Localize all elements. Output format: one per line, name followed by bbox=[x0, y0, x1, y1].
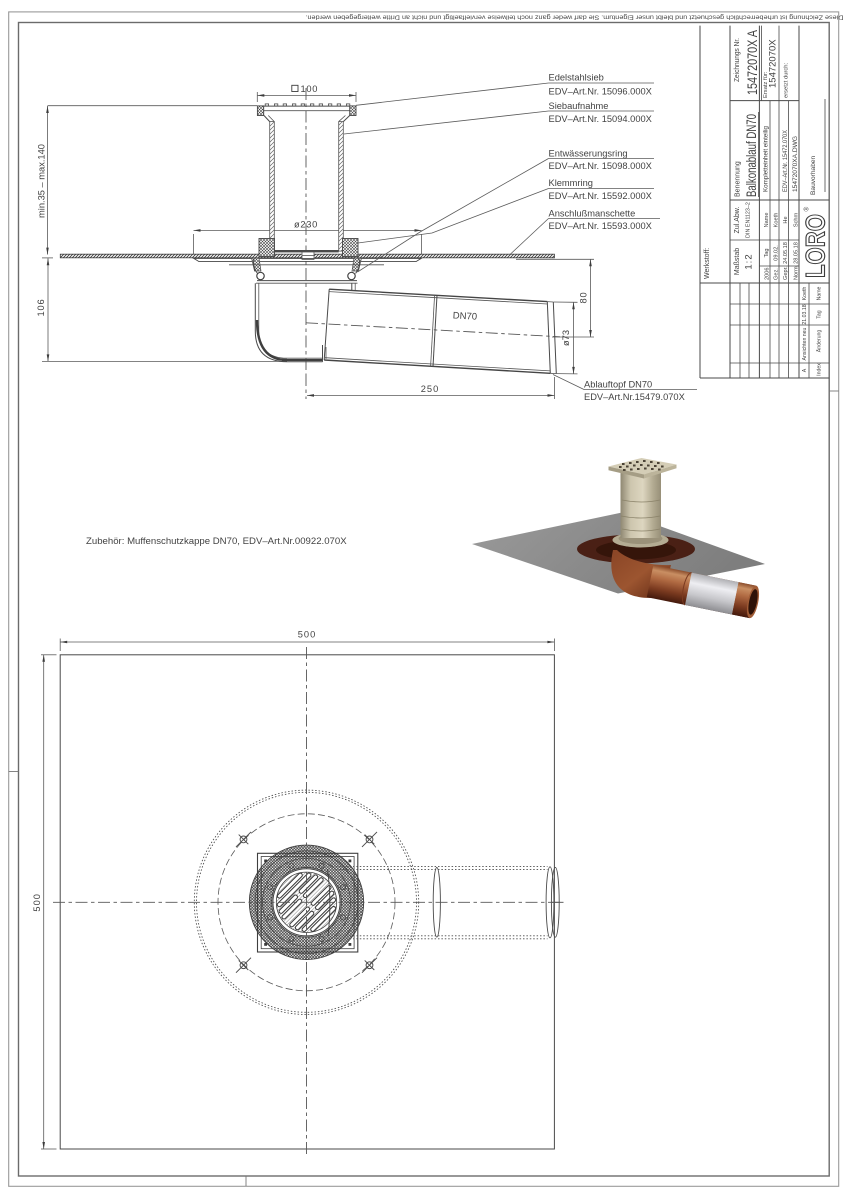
svg-text:Koeth: Koeth bbox=[774, 213, 780, 228]
svg-text:Ablauftopf DN70: Ablauftopf DN70 bbox=[584, 379, 652, 389]
svg-text:Tag: Tag bbox=[764, 248, 770, 257]
svg-text:15472070XA.DWG: 15472070XA.DWG bbox=[792, 136, 799, 192]
svg-text:500: 500 bbox=[298, 630, 317, 640]
svg-text:EDV–Art.Nr. 15472.070X: EDV–Art.Nr. 15472.070X bbox=[782, 129, 789, 192]
svg-text:100: 100 bbox=[301, 84, 319, 94]
svg-text:Bauvorhaben: Bauvorhaben bbox=[810, 155, 817, 195]
svg-text:DN70: DN70 bbox=[452, 310, 477, 322]
svg-text:Siebaufnahme: Siebaufnahme bbox=[549, 101, 609, 111]
svg-text:EDV–Art.Nr. 15096.000X: EDV–Art.Nr. 15096.000X bbox=[549, 86, 652, 96]
svg-text:®: ® bbox=[803, 207, 811, 212]
svg-text:Balkonablauf DN70: Balkonablauf DN70 bbox=[744, 114, 759, 197]
svg-text:ersetzt durch:: ersetzt durch: bbox=[784, 62, 790, 98]
svg-text:Ansichten neu: Ansichten neu bbox=[802, 327, 808, 360]
svg-text:Norm.: Norm. bbox=[793, 264, 799, 280]
svg-text:Werkstoff:: Werkstoff: bbox=[704, 248, 711, 279]
svg-text:Anschlußmanschette: Anschlußmanschette bbox=[549, 208, 636, 218]
svg-text:1:2: 1:2 bbox=[744, 253, 755, 269]
svg-text:Zul.Abw.: Zul.Abw. bbox=[734, 207, 741, 234]
svg-text:EDV–Art.Nr. 15593.000X: EDV–Art.Nr. 15593.000X bbox=[549, 221, 652, 231]
svg-text:Index: Index bbox=[817, 363, 823, 376]
svg-text:15472070X A: 15472070X A bbox=[745, 30, 760, 95]
svg-text:Benennung: Benennung bbox=[735, 161, 742, 197]
svg-text:EDV–Art.Nr.15479.070X: EDV–Art.Nr.15479.070X bbox=[584, 392, 685, 402]
svg-text:He: He bbox=[783, 216, 789, 223]
svg-text:ø73: ø73 bbox=[561, 330, 571, 346]
svg-text:Diese Zeichnung ist urheberrec: Diese Zeichnung ist urheberrechtlich ges… bbox=[305, 14, 843, 21]
svg-text:Name: Name bbox=[764, 213, 770, 228]
svg-text:Gez.: Gez. bbox=[774, 268, 780, 280]
svg-text:EDV–Art.Nr. 15592.000X: EDV–Art.Nr. 15592.000X bbox=[549, 191, 652, 201]
svg-text:Entwässerungsring: Entwässerungsring bbox=[549, 148, 628, 158]
svg-text:28.05.18: 28.05.18 bbox=[793, 242, 799, 264]
svg-text:21.03.18: 21.03.18 bbox=[802, 304, 808, 324]
svg-text:DIN EN1123–2: DIN EN1123–2 bbox=[746, 202, 752, 238]
svg-text:min.35 – max.140: min.35 – max.140 bbox=[37, 144, 47, 218]
svg-text:Name: Name bbox=[817, 286, 823, 300]
svg-text:Edelstahlsieb: Edelstahlsieb bbox=[549, 73, 604, 83]
svg-text:106: 106 bbox=[36, 299, 46, 317]
svg-text:Zubehör: Muffenschutzkappe DN: Zubehör: Muffenschutzkappe DN70, EDV–Art… bbox=[86, 536, 347, 547]
svg-text:Änderung: Änderung bbox=[816, 330, 823, 353]
svg-text:EDV–Art.Nr. 15094.000X: EDV–Art.Nr. 15094.000X bbox=[549, 114, 652, 124]
svg-text:09.02.: 09.02. bbox=[774, 245, 780, 261]
svg-text:Gepr.: Gepr. bbox=[783, 266, 789, 280]
svg-text:EDV–Art.Nr. 15098.000X: EDV–Art.Nr. 15098.000X bbox=[549, 161, 652, 171]
svg-text:15472070X: 15472070X bbox=[768, 39, 779, 88]
svg-text:2006: 2006 bbox=[764, 268, 770, 280]
svg-text:24.05.18: 24.05.18 bbox=[783, 242, 789, 264]
svg-text:A: A bbox=[802, 368, 808, 372]
svg-text:Schm: Schm bbox=[793, 213, 799, 228]
svg-text:250: 250 bbox=[421, 384, 440, 394]
svg-text:500: 500 bbox=[32, 893, 42, 912]
svg-text:Koeth: Koeth bbox=[802, 287, 808, 301]
svg-text:Kompletteinheit einteilig: Kompletteinheit einteilig bbox=[763, 126, 770, 192]
svg-text:ø230: ø230 bbox=[294, 220, 318, 230]
svg-text:Maßstab: Maßstab bbox=[734, 248, 741, 275]
svg-text:Tag: Tag bbox=[817, 310, 823, 318]
svg-text:80: 80 bbox=[579, 292, 589, 304]
svg-text:Klemmring: Klemmring bbox=[549, 178, 593, 188]
svg-text:LORO: LORO bbox=[801, 214, 831, 278]
svg-text:Zeichnungs Nr.: Zeichnungs Nr. bbox=[734, 38, 741, 82]
